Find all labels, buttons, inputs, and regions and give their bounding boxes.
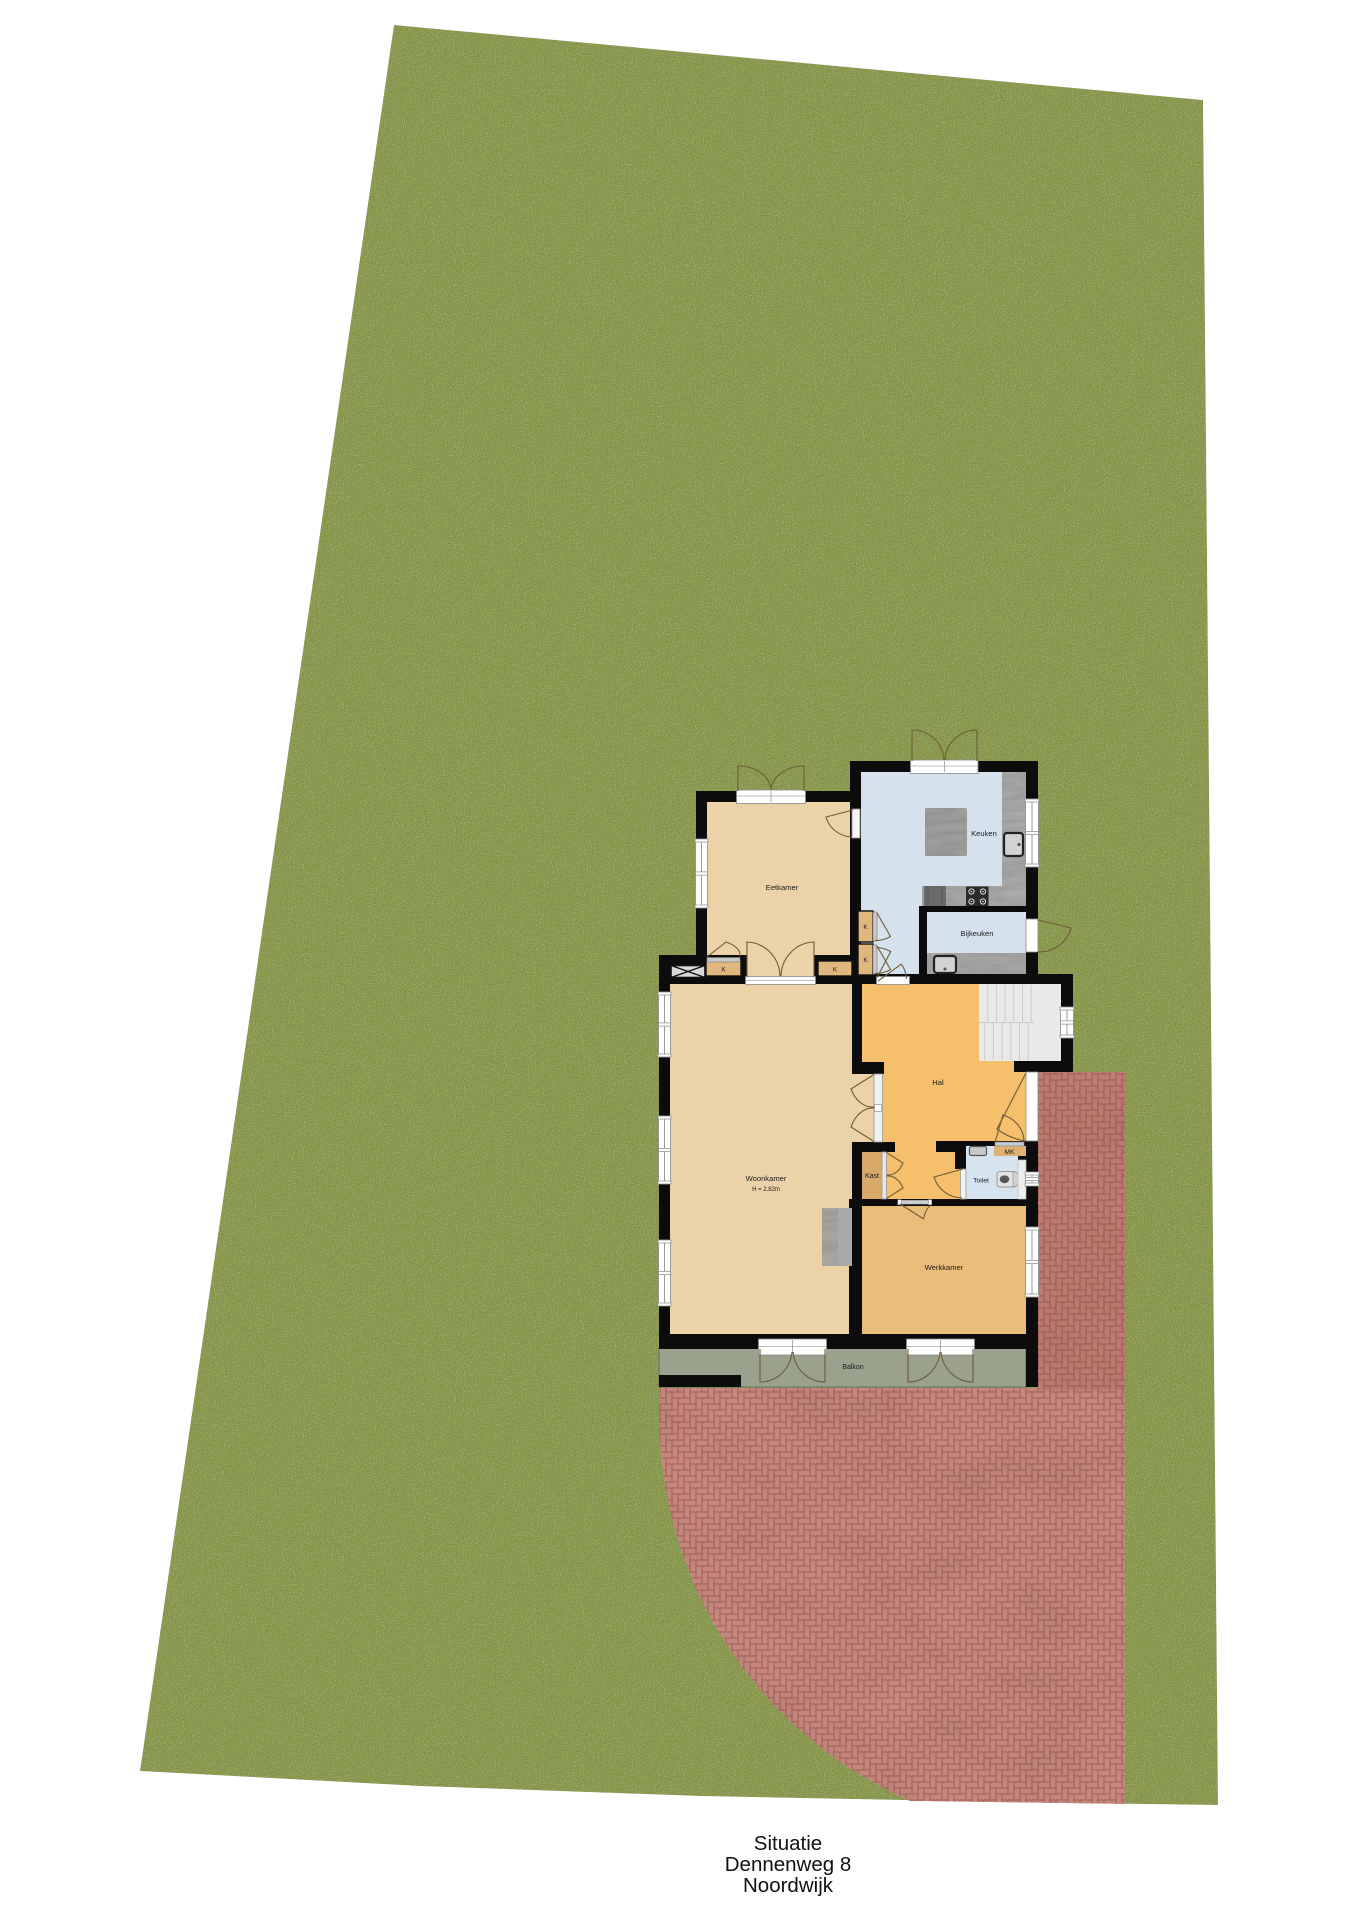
svg-text:MK: MK — [1004, 1149, 1015, 1156]
svg-text:Woonkamer: Woonkamer — [746, 1174, 787, 1183]
svg-text:Werkkamer: Werkkamer — [925, 1263, 964, 1272]
svg-text:Keuken: Keuken — [971, 829, 997, 838]
svg-text:H = 2.82m: H = 2.82m — [752, 1187, 780, 1193]
svg-text:Bijkeuken: Bijkeuken — [961, 929, 994, 938]
svg-text:Eetkamer: Eetkamer — [766, 883, 799, 892]
svg-text:K: K — [863, 957, 868, 964]
svg-text:Toilet: Toilet — [973, 1178, 989, 1185]
svg-text:Kast: Kast — [865, 1173, 879, 1180]
svg-text:Balkon: Balkon — [842, 1364, 864, 1371]
svg-text:K: K — [721, 967, 726, 974]
svg-text:K: K — [863, 924, 868, 931]
svg-text:K: K — [833, 967, 838, 974]
svg-text:Hal: Hal — [932, 1078, 944, 1087]
